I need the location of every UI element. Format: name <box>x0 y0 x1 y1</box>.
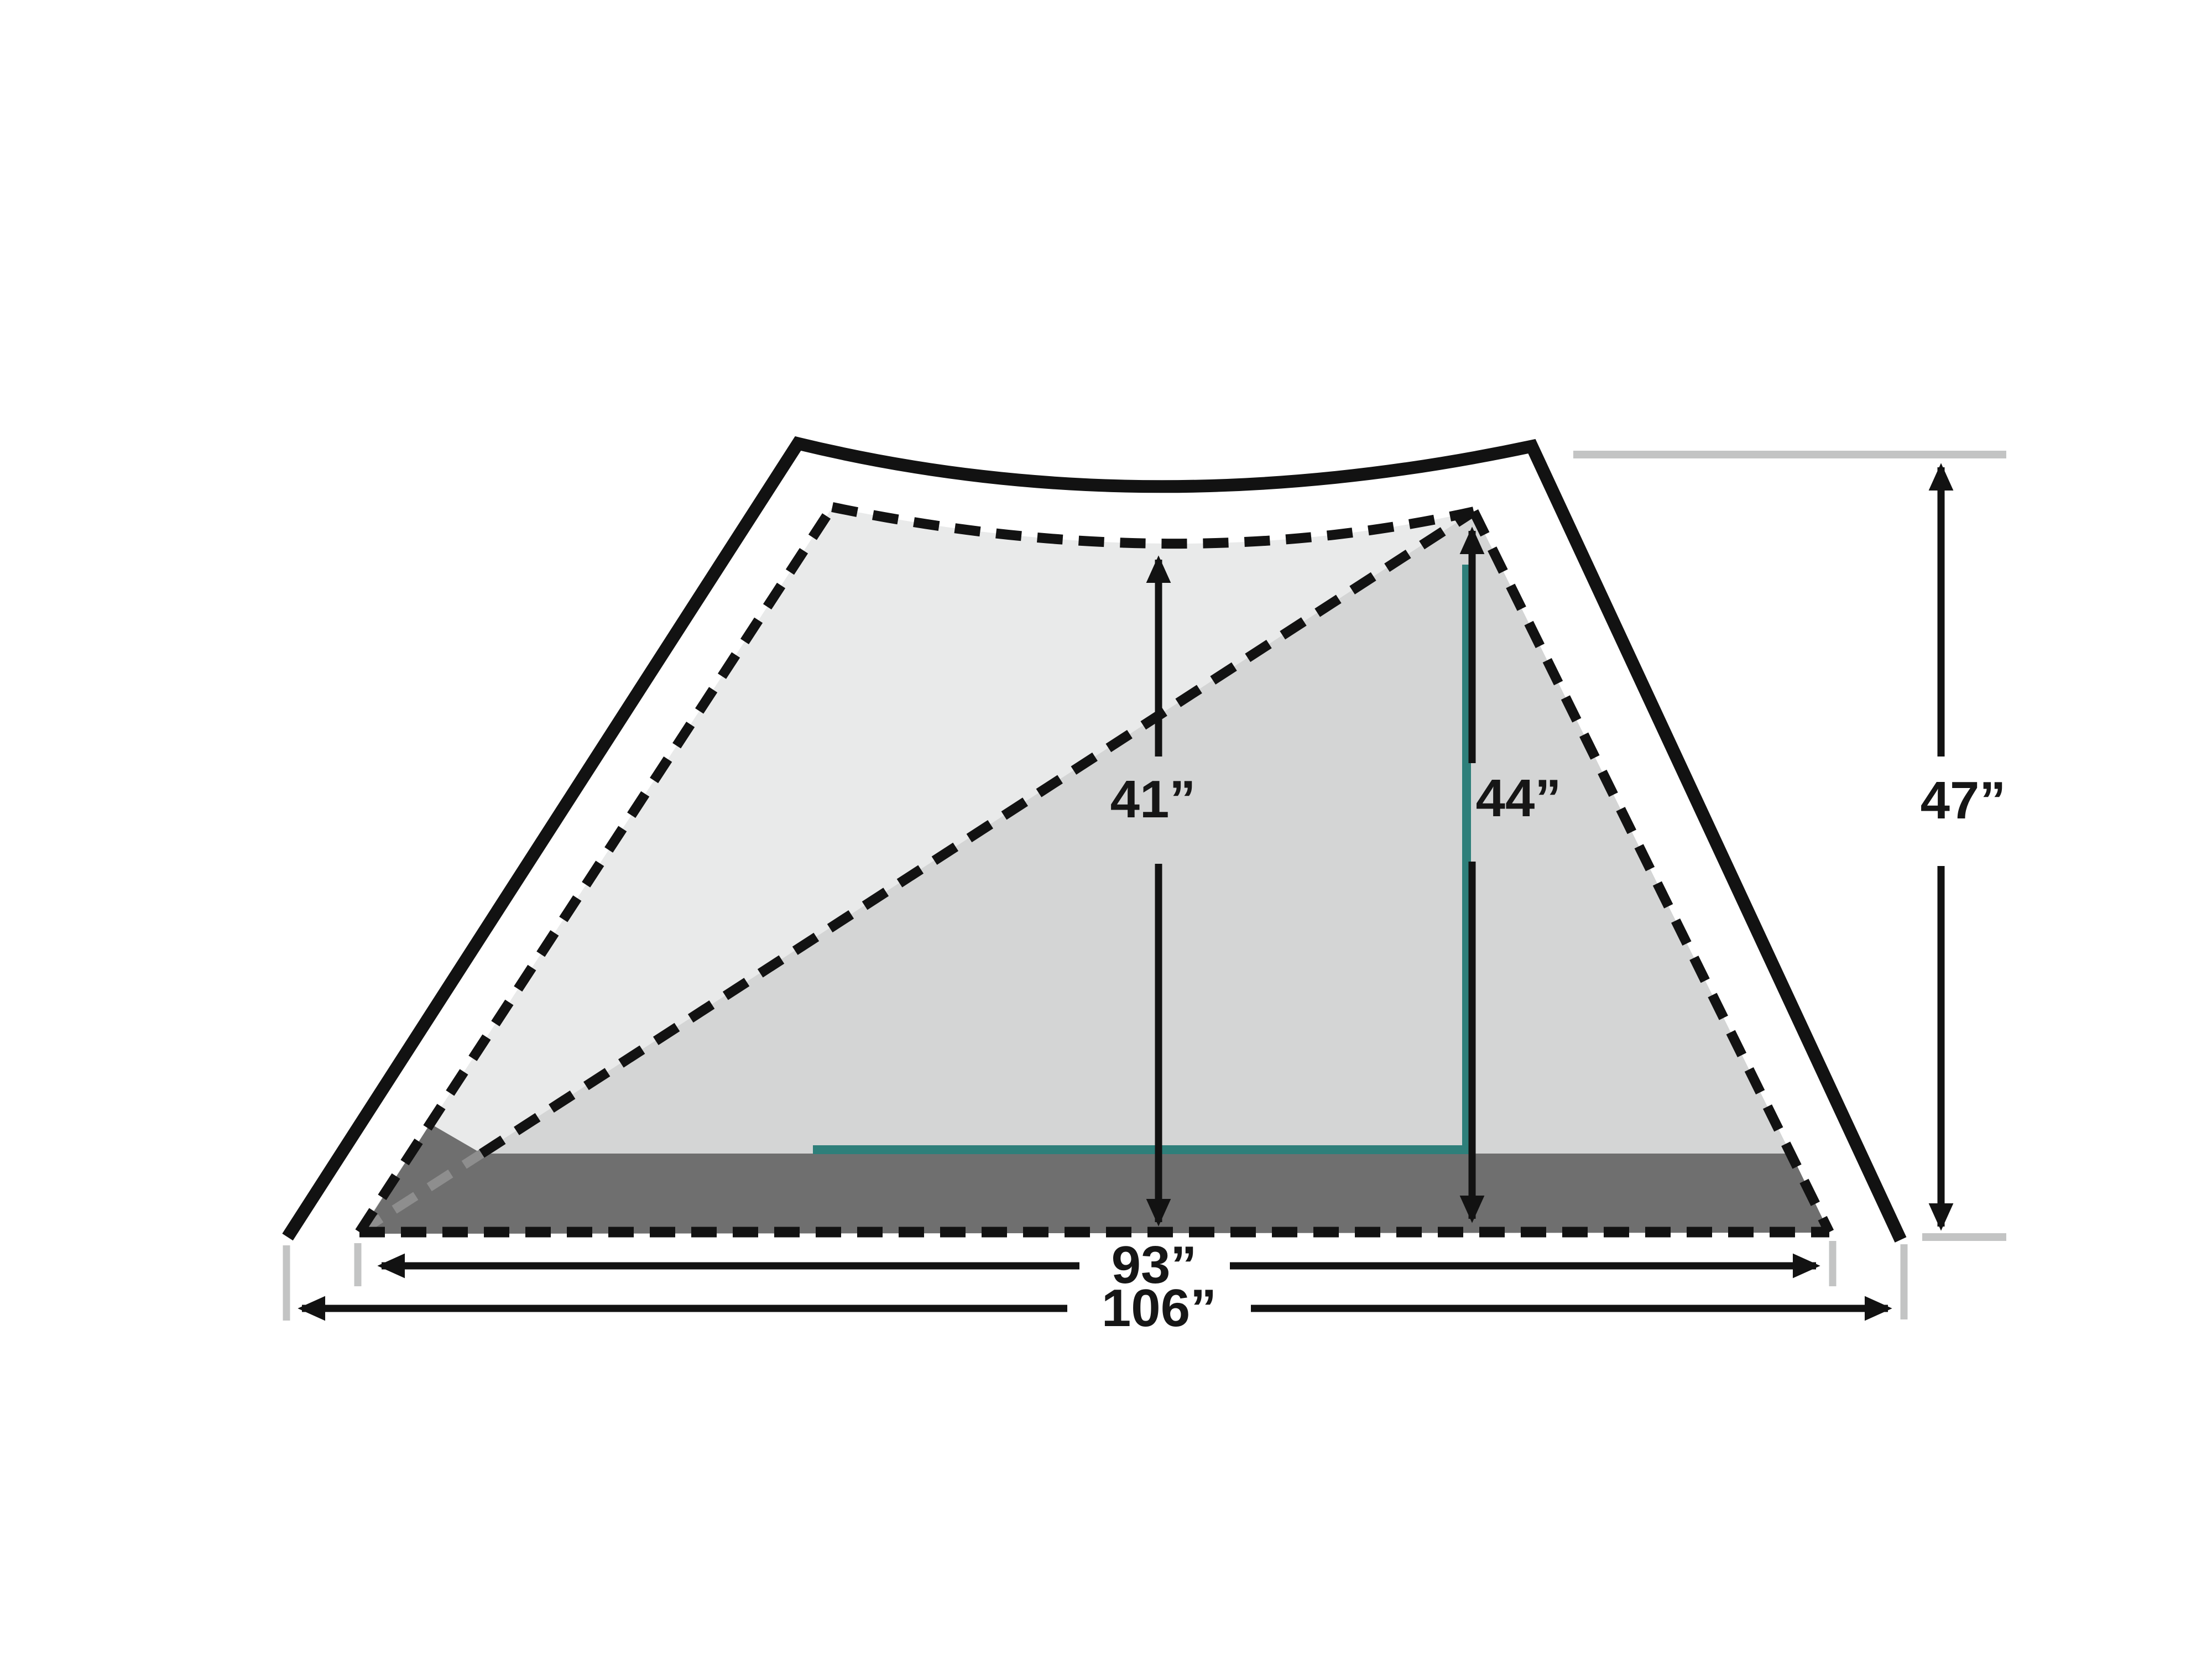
overall-height-label: 47” <box>1921 771 2006 830</box>
interior-height-label: 41” <box>1110 770 1196 829</box>
diagram-canvas: 41” 44” 47” 93” 106” <box>0 0 2212 1659</box>
overall-length-label: 106” <box>1102 1279 1217 1338</box>
tent-dimension-diagram: 41” 44” 47” 93” 106” <box>0 0 2212 1659</box>
peak-height-label: 44” <box>1476 769 1562 828</box>
